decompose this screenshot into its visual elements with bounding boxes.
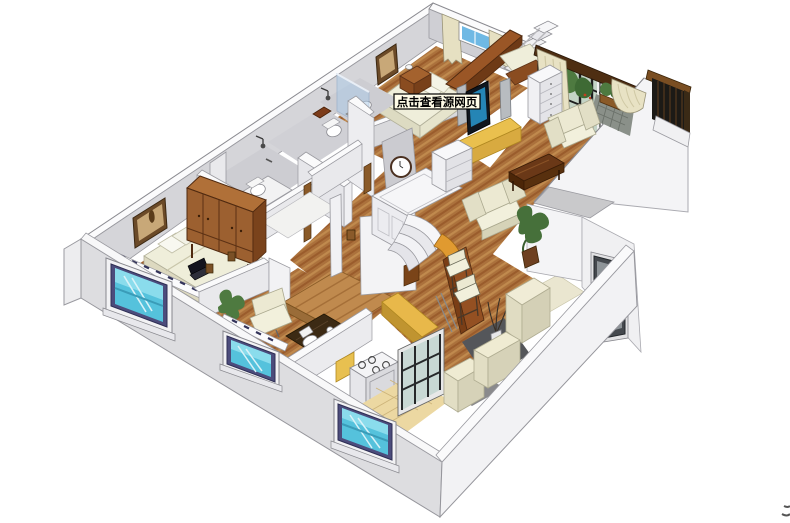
svg-text:点击查看源网页: 点击查看源网页 (397, 95, 478, 109)
